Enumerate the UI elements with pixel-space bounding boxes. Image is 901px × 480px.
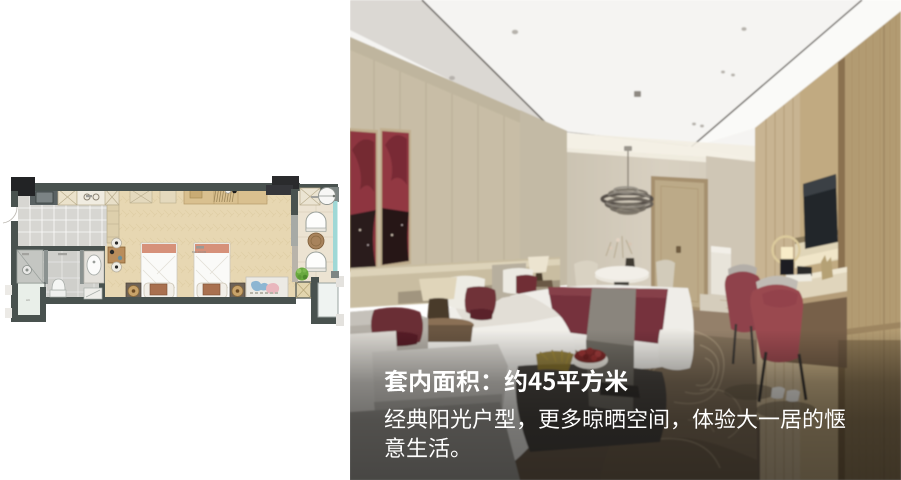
svg-text:BED ROOM: BED ROOM — [192, 250, 206, 254]
